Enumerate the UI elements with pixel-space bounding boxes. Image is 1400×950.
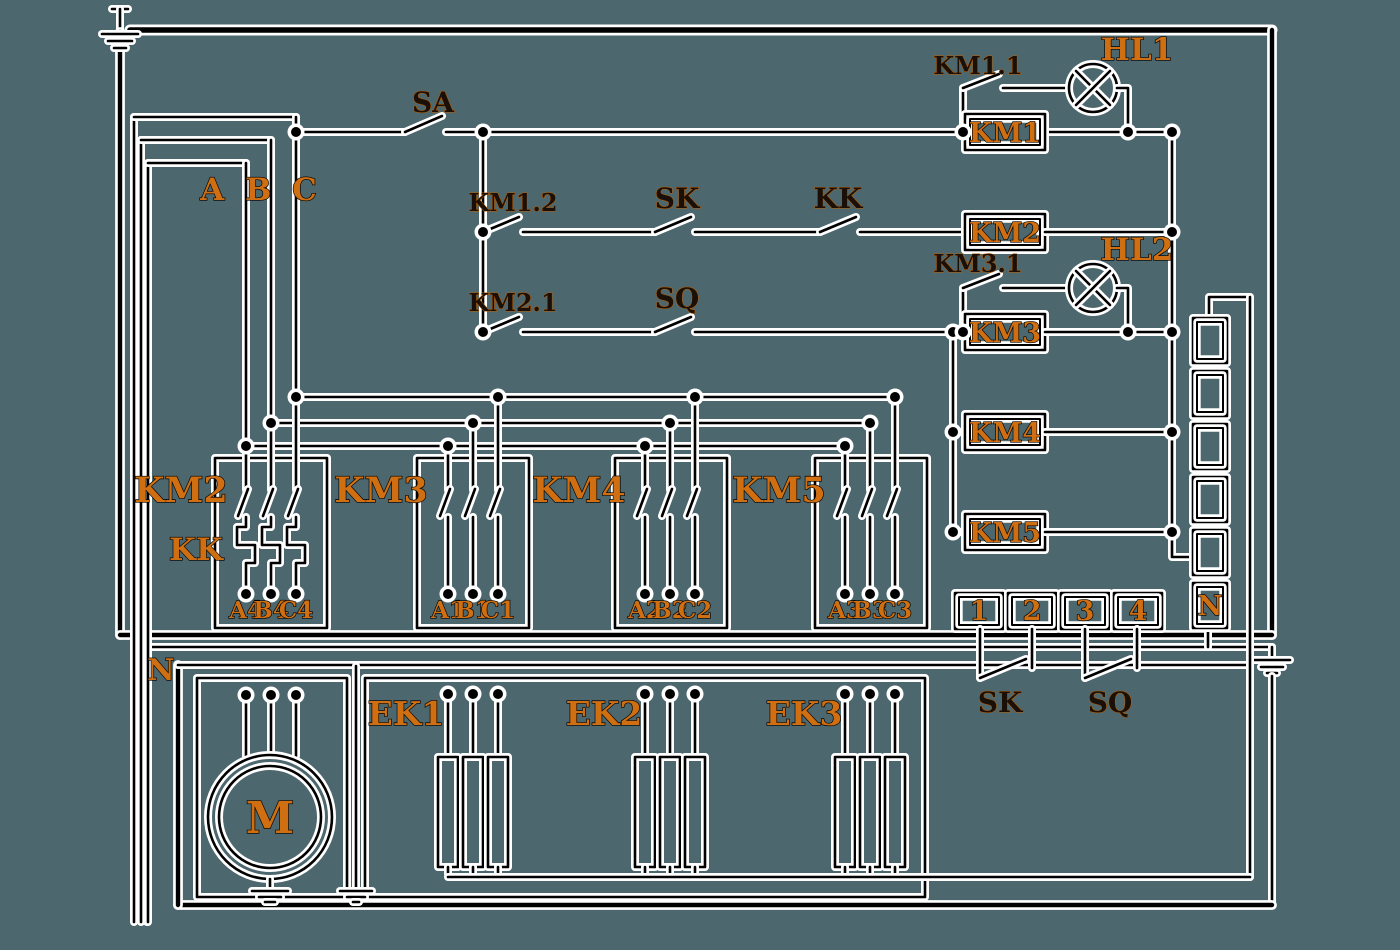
- output-label-c1: C1: [481, 597, 515, 624]
- label-km1-1: KM1.1: [933, 51, 1022, 80]
- contact-sq: [655, 317, 691, 332]
- label-km1-2: KM1.2: [468, 188, 557, 217]
- contactor-label-km5: KM5: [732, 470, 826, 511]
- label-sk-bottom: SK: [978, 686, 1024, 719]
- coil-label-km4: KM4: [969, 418, 1041, 449]
- contactor-label-km2: KM2: [134, 470, 228, 511]
- label-sa: SA: [412, 86, 455, 119]
- label-kk-side: KK: [169, 532, 224, 568]
- output-label-c3: C3: [878, 597, 912, 624]
- coil-label-km5: KM5: [969, 518, 1041, 549]
- terminal-label-2: 2: [1023, 596, 1042, 627]
- terminal-label-3: 3: [1076, 596, 1095, 627]
- circuit-diagram: A B C SA KM1.1 HL1 KM1.2 SK KK KM2.1 SQ …: [0, 0, 1400, 950]
- label-hl1: HL1: [1101, 32, 1174, 68]
- distribution-wires: [246, 397, 895, 446]
- motor-label: M: [246, 793, 295, 844]
- terminal-label-1: 1: [970, 596, 989, 627]
- label-km3-1: KM3.1: [933, 249, 1022, 278]
- label-sq-bottom: SQ: [1088, 686, 1133, 719]
- contactor-label-km3: KM3: [334, 470, 428, 511]
- output-label-c2: C2: [678, 597, 712, 624]
- contact-kk: [820, 217, 856, 232]
- heater-label-ek3: EK3: [766, 694, 843, 733]
- label-phase-abc: A B C: [199, 172, 322, 208]
- coil-label-km2: KM2: [969, 218, 1041, 249]
- coil-label-km1: KM1: [969, 118, 1041, 149]
- motor-enclosure: [197, 678, 347, 902]
- label-sk-row: SK: [655, 182, 701, 215]
- contactor-label-km4: KM4: [532, 470, 626, 511]
- terminal-label-4: 4: [1129, 596, 1148, 627]
- label-hl2: HL2: [1101, 232, 1174, 268]
- output-label-c4: C4: [279, 597, 313, 624]
- heater-label-ek2: EK2: [566, 694, 643, 733]
- control-row-3: [483, 264, 1172, 350]
- label-neutral-left: N: [147, 653, 174, 688]
- control-row-2: [483, 132, 1172, 332]
- contact-sk: [655, 217, 691, 232]
- terminal-label-n: N: [1198, 591, 1223, 622]
- heater-label-ek1: EK1: [368, 694, 445, 733]
- coil-label-km3: KM3: [969, 318, 1041, 349]
- terminal-strip-vertical: [1193, 297, 1250, 877]
- label-sq-row: SQ: [655, 282, 700, 315]
- label-km2-1: KM2.1: [468, 288, 557, 317]
- label-kk-row: KK: [814, 182, 864, 215]
